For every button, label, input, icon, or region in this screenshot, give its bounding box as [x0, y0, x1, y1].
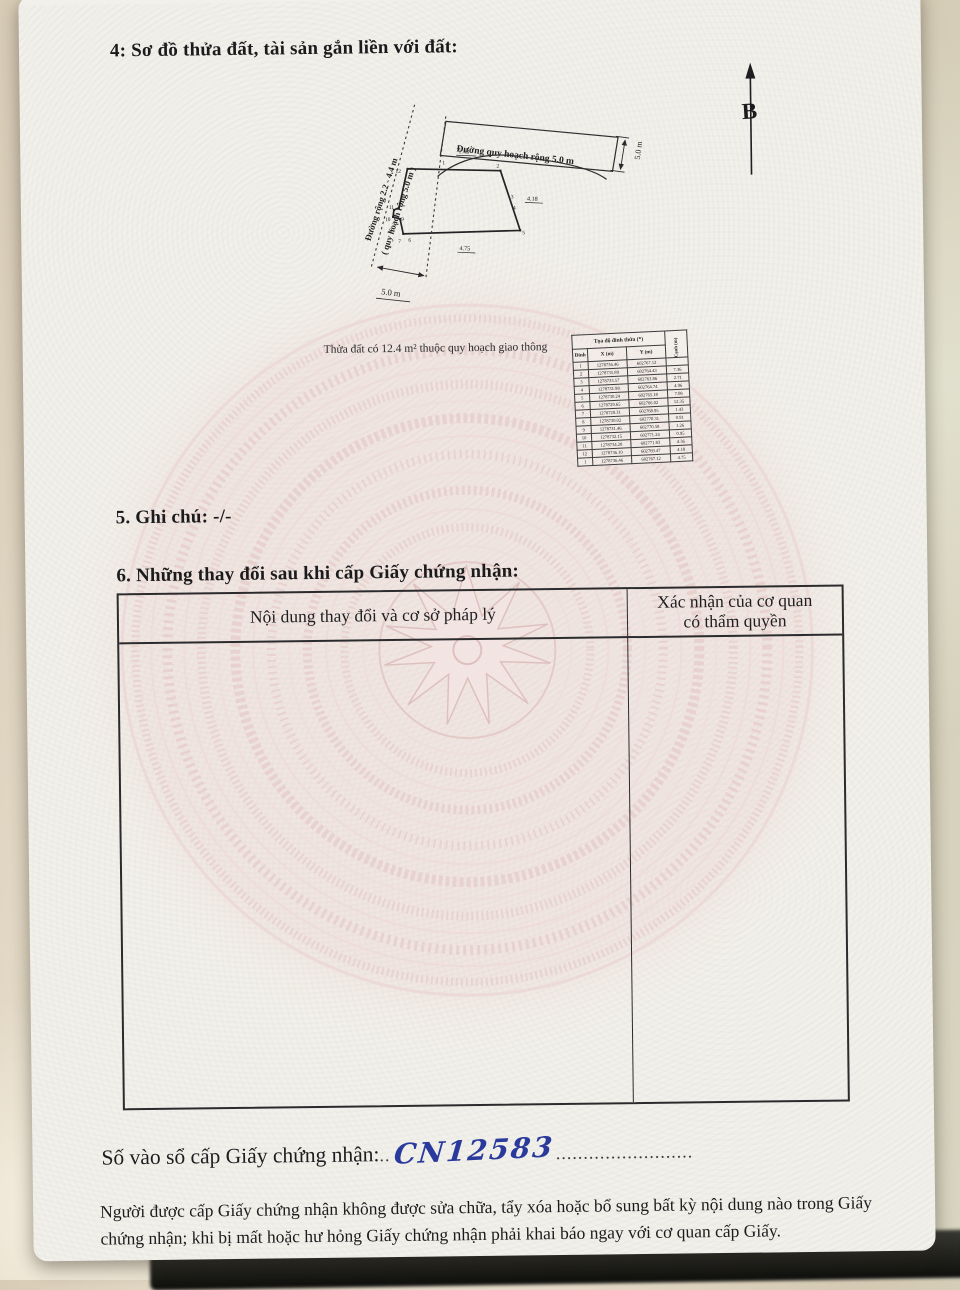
changes-col2-line2: có thẩm quyền — [683, 611, 786, 632]
changes-col2-line1: Xác nhận của cơ quan — [657, 591, 812, 612]
vertex-label-6: 6 — [408, 238, 411, 244]
footer-warning-text: Người được cấp Giấy chứng nhận không đượ… — [100, 1189, 903, 1253]
vertex-label-3: 3 — [511, 195, 514, 201]
changes-table-divider — [627, 636, 634, 1102]
section4-title: 4: Sơ đồ thửa đất, tài sản gắn liền với … — [110, 36, 458, 62]
book-entry-number-handwritten: CN12583 — [393, 1130, 556, 1171]
vertex-label-7: 7 — [398, 239, 401, 245]
vertex-label-1: 1 — [442, 160, 445, 166]
vertex-label-9: 9 — [401, 217, 404, 223]
changes-col1-header: Nội dung thay đổi và cơ sở pháp lý — [119, 589, 628, 642]
section5-note: 5. Ghi chú: -/- — [116, 506, 232, 529]
north-arrow-head — [745, 63, 755, 79]
certificate-page: 4: Sơ đồ thửa đất, tài sản gắn liền với … — [18, 0, 935, 1261]
road-left-width-dim — [378, 267, 424, 277]
road-top-width-dim — [620, 140, 625, 169]
north-label: B — [741, 98, 758, 124]
vertex-label-2: 2 — [496, 164, 499, 170]
changes-table-header: Nội dung thay đổi và cơ sở pháp lý Xác n… — [119, 587, 843, 645]
vertex-label-4: 4 — [513, 205, 516, 211]
dots-after: ......................... — [556, 1141, 694, 1163]
changes-table: Nội dung thay đổi và cơ sở pháp lý Xác n… — [117, 585, 850, 1111]
vertex-label-8: 8 — [389, 228, 392, 234]
north-arrow-line — [750, 75, 751, 175]
certificate-sheet: 4: Sơ đồ thửa đất, tài sản gắn liền với … — [18, 0, 935, 1261]
coordinate-table: Tọa độ đỉnh thửa (*) Cạnh (m) Đỉnh X (m)… — [571, 329, 693, 466]
dim-top: 1.43 — [458, 148, 469, 155]
road-left-dashed-inner — [424, 116, 448, 278]
dim-bottom: 4.75 — [459, 245, 470, 252]
coord-table-body: 11278736.46602767.1221278735.89602764.43… — [573, 357, 693, 466]
vertex-label-12: 12 — [395, 169, 401, 175]
book-entry-line: Số vào sổ cấp Giấy chứng nhận:..CN12583.… — [101, 1131, 693, 1171]
changes-col2-header: Xác nhận của cơ quan có thẩm quyền — [627, 587, 843, 637]
north-arrow-svg: B — [723, 51, 785, 182]
dots-before: .. — [379, 1145, 390, 1165]
coord-col-vertex: Đỉnh — [572, 349, 588, 363]
coord-col-edge: Cạnh (m) — [665, 330, 688, 358]
plot-diagram-svg: Đường quy hoạch rộng 5.0 m 5.0 m Đường r… — [323, 57, 696, 312]
vertex-label-10: 10 — [385, 217, 391, 223]
road-top-width-label: 5.0 m — [633, 140, 644, 160]
road-left-width-label: 5.0 m — [381, 286, 402, 298]
dim-right: 4.18 — [527, 195, 538, 203]
vertex-label-5: 5 — [522, 230, 525, 236]
book-entry-label: Số vào sổ cấp Giấy chứng nhận: — [101, 1142, 379, 1169]
